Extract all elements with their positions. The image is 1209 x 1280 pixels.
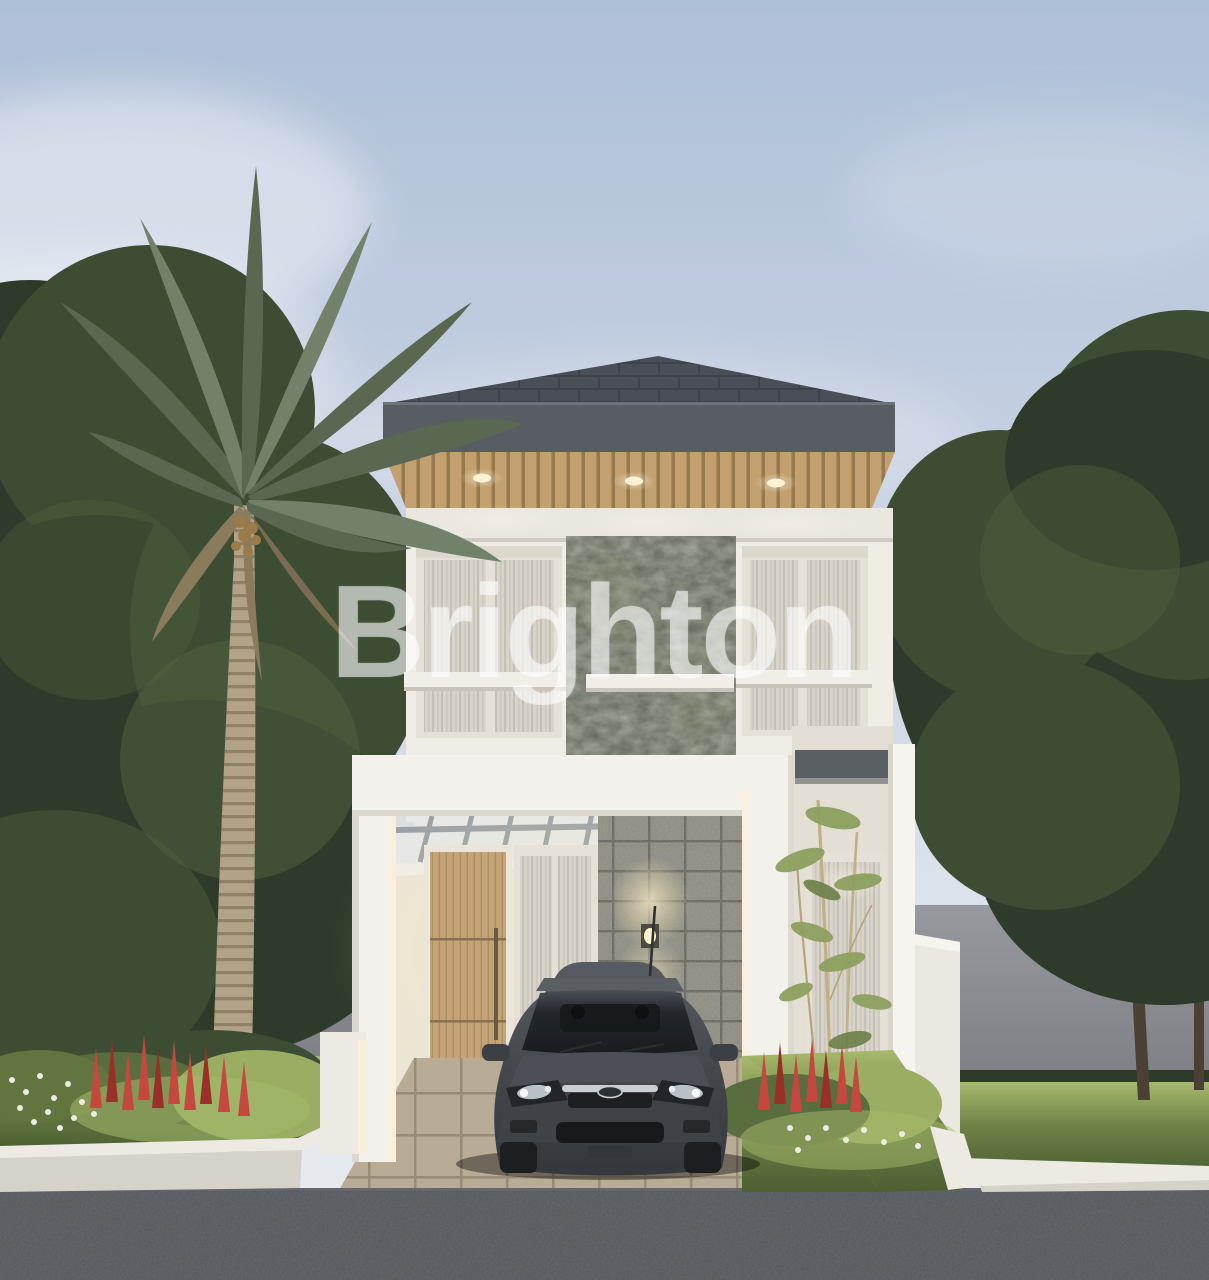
window-upper-right [736,546,872,736]
scene-canvas [0,0,1209,1280]
car-mirror-right [710,1044,738,1061]
window-canopy [795,750,893,778]
car-wheel-left [500,1142,537,1173]
stone-accent-panel [566,536,736,758]
car-license-plate [588,1146,632,1158]
window-upper-left [404,546,566,738]
architectural-rendering-scene: Brighton [0,0,1209,1280]
portal-top-beam [352,755,794,816]
door-handle [494,928,498,1040]
car-mirror-left [482,1044,510,1061]
left-garden-bed [0,1030,366,1192]
window-ledge [736,670,872,686]
stone-ledge [586,674,734,690]
window-ledge [404,672,566,689]
car-wheel-right [684,1142,721,1173]
car-roof [536,978,684,991]
road [0,1188,1209,1280]
